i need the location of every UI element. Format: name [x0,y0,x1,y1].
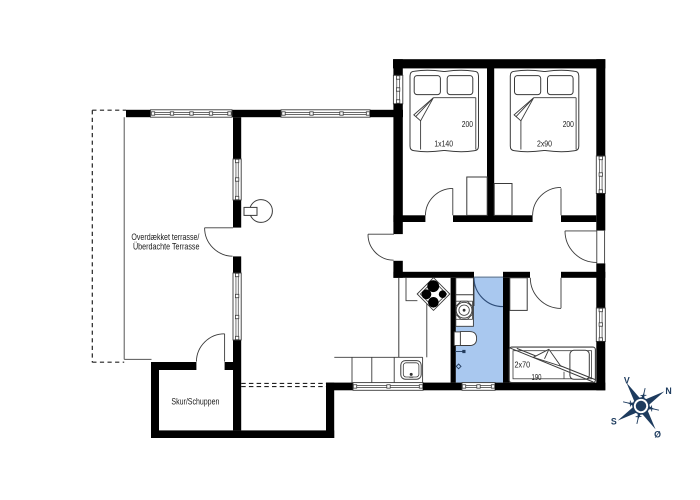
svg-text:190: 190 [532,372,542,382]
svg-text:Ø: Ø [654,430,661,440]
svg-text:2x70: 2x70 [515,360,531,370]
svg-text:200: 200 [462,119,473,129]
svg-text:2x90: 2x90 [537,139,552,149]
svg-text:V: V [624,376,630,386]
svg-text:1x140: 1x140 [434,139,453,149]
svg-text:200: 200 [563,119,574,129]
svg-text:Überdachte Terrasse: Überdachte Terrasse [133,241,200,251]
svg-text:S: S [611,417,617,427]
svg-text:N: N [665,386,671,396]
svg-text:Skur/Schuppen: Skur/Schuppen [171,396,219,406]
